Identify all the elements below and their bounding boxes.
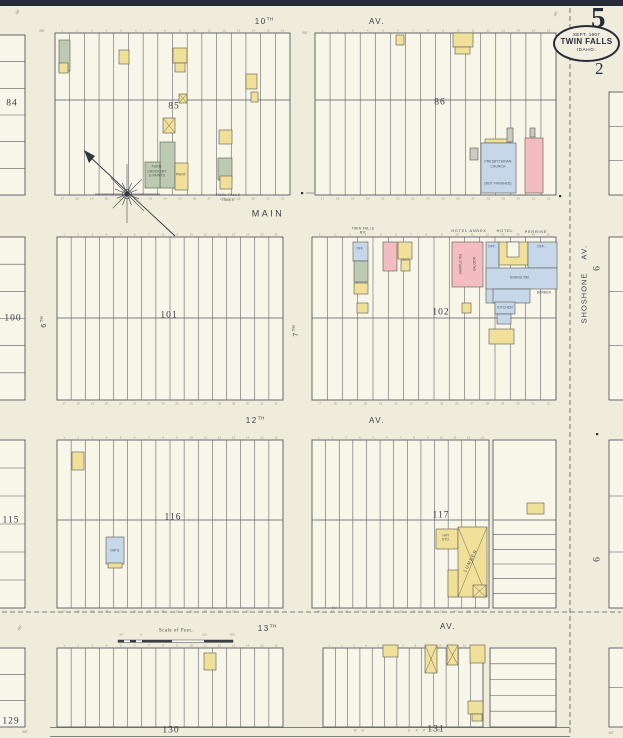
lot-number: 15 bbox=[260, 233, 264, 237]
sanborn-map-sheet: 1172183194205216227238249251026112712281… bbox=[0, 0, 623, 738]
lot-number: 31 bbox=[531, 402, 535, 406]
lot-number: 11 bbox=[204, 644, 207, 648]
building bbox=[383, 645, 398, 657]
lot-number: 1 bbox=[63, 233, 65, 237]
lot-number: 24 bbox=[163, 197, 167, 201]
lot-number: 27 bbox=[471, 197, 475, 201]
lot-number: 6 bbox=[386, 436, 388, 440]
lot-number: 32 bbox=[274, 610, 278, 614]
building bbox=[251, 92, 258, 102]
lot-number: 29 bbox=[232, 402, 236, 406]
lot-number: 2 bbox=[77, 233, 79, 237]
lot-number: 8 bbox=[164, 29, 166, 33]
lot-number: 25 bbox=[175, 610, 179, 614]
lot-number: 17 bbox=[62, 610, 66, 614]
lot-number: 5 bbox=[120, 644, 122, 648]
lot-number: 30 bbox=[246, 402, 250, 406]
lot-number: 11 bbox=[204, 233, 207, 237]
lot-number: 4 bbox=[365, 233, 367, 237]
lot-number: 19 bbox=[351, 197, 355, 201]
lot-number: 15 bbox=[266, 29, 270, 33]
lot-number: 9 bbox=[179, 29, 181, 33]
lot-number: 12 bbox=[218, 436, 222, 440]
building bbox=[354, 283, 368, 294]
lot-number: 29 bbox=[232, 610, 236, 614]
lot-number: 9 bbox=[442, 29, 444, 33]
lot-number: 8 bbox=[426, 233, 428, 237]
lot-number: 19 bbox=[385, 610, 389, 614]
lot-number: 16 bbox=[281, 29, 285, 33]
lot-number: 8 bbox=[162, 644, 164, 648]
building bbox=[145, 162, 160, 188]
lot-number: 10 bbox=[190, 644, 194, 648]
lot-number: 30 bbox=[516, 402, 520, 406]
lot-number: 20 bbox=[105, 610, 109, 614]
building bbox=[106, 537, 124, 564]
lot-number: 12 bbox=[218, 644, 222, 648]
building bbox=[119, 50, 129, 64]
lot-number: 1 bbox=[62, 29, 64, 33]
building bbox=[175, 163, 188, 190]
lot-number: 9 bbox=[441, 233, 443, 237]
lot-number: 11 bbox=[471, 233, 474, 237]
lot-number: 13 bbox=[232, 644, 236, 648]
lot-number: 2 bbox=[337, 29, 339, 33]
lot-number: 6 bbox=[395, 233, 397, 237]
building bbox=[470, 148, 478, 160]
lot-number: 22 bbox=[133, 610, 137, 614]
lot-number: 32 bbox=[547, 197, 551, 201]
lot-number: 10 bbox=[455, 233, 459, 237]
building bbox=[530, 128, 535, 137]
lot-number: 12 bbox=[486, 233, 490, 237]
lot-number: 17 bbox=[358, 610, 362, 614]
publisher-stamp: SEPT. 1907 TWIN FALLS IDAHO. bbox=[553, 25, 620, 62]
lot-number: 31 bbox=[260, 402, 264, 406]
lot-number: 15 bbox=[331, 610, 335, 614]
lot-number: 9 bbox=[427, 436, 429, 440]
lot-number: 15 bbox=[531, 233, 535, 237]
lot-number: 2 bbox=[341, 644, 343, 648]
stamp-date: SEPT. 1907 bbox=[555, 32, 618, 37]
lot-number: 27 bbox=[204, 610, 208, 614]
building bbox=[468, 701, 483, 714]
stamp-city: TWIN FALLS bbox=[555, 37, 618, 46]
building bbox=[108, 563, 122, 568]
lot-number: 26 bbox=[190, 610, 194, 614]
lot-number: 15 bbox=[260, 436, 264, 440]
city-block bbox=[0, 648, 25, 727]
lot-number: 1 bbox=[63, 436, 65, 440]
lot-number: 12 bbox=[218, 233, 222, 237]
lot-number: 27 bbox=[208, 197, 212, 201]
lot-number: 2 bbox=[77, 644, 79, 648]
lot-number: 32 bbox=[274, 402, 278, 406]
lot-number: 18 bbox=[77, 402, 81, 406]
building bbox=[204, 653, 216, 670]
lot-number: 1 bbox=[63, 644, 65, 648]
compass-center bbox=[125, 192, 130, 197]
lot-number: 20 bbox=[399, 610, 403, 614]
lot-number: 14 bbox=[246, 644, 250, 648]
lot-number: 9 bbox=[176, 436, 178, 440]
lot-number: 4 bbox=[365, 644, 367, 648]
sheet-top-border bbox=[0, 0, 623, 6]
city-block bbox=[323, 648, 483, 727]
lot-number: 3 bbox=[349, 233, 351, 237]
lot-number: 10 bbox=[190, 233, 194, 237]
lot-number: 15 bbox=[260, 644, 264, 648]
lot-number: 28 bbox=[487, 197, 491, 201]
building bbox=[470, 645, 485, 663]
lot-number: 14 bbox=[246, 233, 250, 237]
stamp-state: IDAHO. bbox=[555, 47, 618, 52]
lot-number: 16 bbox=[274, 436, 278, 440]
building bbox=[472, 714, 482, 721]
lot-number: 20 bbox=[366, 197, 370, 201]
building bbox=[353, 242, 368, 261]
lot-number: 9 bbox=[176, 233, 178, 237]
lot-number: 29 bbox=[501, 402, 505, 406]
scale-bar-segment bbox=[118, 640, 124, 642]
lot-number: 17 bbox=[318, 402, 322, 406]
lot-number: 28 bbox=[486, 402, 490, 406]
lot-number: 14 bbox=[252, 29, 256, 33]
lot-number: 9 bbox=[176, 644, 178, 648]
lot-number: 13 bbox=[232, 436, 236, 440]
building bbox=[462, 303, 471, 313]
lot-number: 16 bbox=[274, 644, 278, 648]
lot-number: 25 bbox=[178, 197, 182, 201]
lot-number: 11 bbox=[472, 29, 475, 33]
lot-number: 18 bbox=[336, 197, 340, 201]
lot-number: 3 bbox=[91, 436, 93, 440]
building bbox=[219, 130, 232, 144]
lot-number: 14 bbox=[246, 436, 250, 440]
lot-number: 6 bbox=[397, 29, 399, 33]
lot-number: 25 bbox=[440, 402, 444, 406]
lot-number: 22 bbox=[394, 402, 398, 406]
building bbox=[507, 242, 519, 257]
lot-number: 23 bbox=[147, 610, 151, 614]
lot-number: 32 bbox=[547, 402, 551, 406]
lot-number: 31 bbox=[260, 610, 264, 614]
lot-number: 12 bbox=[463, 644, 467, 648]
building bbox=[448, 570, 458, 597]
lot-number: 18 bbox=[333, 402, 337, 406]
lot-number: 8 bbox=[413, 436, 415, 440]
building bbox=[486, 268, 557, 289]
building bbox=[383, 242, 397, 271]
lot-number: 31 bbox=[266, 197, 270, 201]
lot-number: 8 bbox=[162, 436, 164, 440]
lot-number: 23 bbox=[147, 402, 151, 406]
lot-number: 19 bbox=[91, 402, 95, 406]
building bbox=[173, 48, 187, 63]
lot-number: 21 bbox=[119, 402, 123, 406]
lot-number: 31 bbox=[532, 197, 536, 201]
lot-number: 28 bbox=[218, 402, 222, 406]
lot-number: 13 bbox=[501, 233, 505, 237]
lot-number: 16 bbox=[274, 233, 278, 237]
lot-number: 14 bbox=[317, 610, 321, 614]
lot-number: 3 bbox=[345, 436, 347, 440]
lot-number: 23 bbox=[149, 197, 153, 201]
lot-number: 20 bbox=[364, 402, 368, 406]
city-block bbox=[609, 440, 623, 608]
lot-number: 23 bbox=[411, 197, 415, 201]
lot-number: 18 bbox=[75, 197, 79, 201]
lot-number: 4 bbox=[106, 29, 108, 33]
building bbox=[507, 128, 513, 142]
lot-number: 16 bbox=[547, 29, 551, 33]
lot-number: 4 bbox=[367, 29, 369, 33]
building bbox=[72, 452, 84, 470]
lot-number: 1 bbox=[319, 233, 321, 237]
lot-number: 7 bbox=[410, 233, 412, 237]
lot-number: 26 bbox=[456, 197, 460, 201]
lot-number: 12 bbox=[487, 29, 491, 33]
lot-number: 16 bbox=[547, 233, 551, 237]
lot-number: 14 bbox=[517, 29, 521, 33]
lot-number: 14 bbox=[516, 233, 520, 237]
building bbox=[493, 289, 530, 303]
lot-number: 13 bbox=[232, 233, 236, 237]
lot-number: 24 bbox=[453, 610, 457, 614]
lot-number: 4 bbox=[359, 436, 361, 440]
building bbox=[495, 302, 515, 314]
lot-number: 5 bbox=[378, 644, 380, 648]
lot-number: 19 bbox=[91, 610, 95, 614]
lot-number: 26 bbox=[190, 402, 194, 406]
building bbox=[220, 176, 232, 189]
building bbox=[401, 260, 410, 271]
scale-bar-segment bbox=[204, 640, 233, 642]
lot-number: 11 bbox=[208, 29, 211, 33]
lot-number: 13 bbox=[502, 29, 506, 33]
lot-number: 32 bbox=[281, 197, 285, 201]
lot-number: 7 bbox=[412, 29, 414, 33]
lot-number: 20 bbox=[105, 197, 109, 201]
lot-number: 4 bbox=[106, 233, 108, 237]
building bbox=[354, 261, 368, 282]
lot-number: 23 bbox=[440, 610, 444, 614]
lot-number: 20 bbox=[105, 402, 109, 406]
lot-number: 6 bbox=[134, 644, 136, 648]
lot-number: 18 bbox=[77, 610, 81, 614]
lot-number: 21 bbox=[379, 402, 383, 406]
lot-number: 26 bbox=[193, 197, 197, 201]
sheet-sub-number: 2 bbox=[595, 59, 604, 79]
lot-number: 12 bbox=[222, 29, 226, 33]
lot-number: 28 bbox=[222, 197, 226, 201]
lot-number: 10 bbox=[438, 644, 442, 648]
lot-number: 3 bbox=[91, 29, 93, 33]
lot-number: 27 bbox=[204, 402, 208, 406]
lot-number: 17 bbox=[62, 402, 66, 406]
lot-number: 30 bbox=[252, 197, 256, 201]
building bbox=[489, 329, 514, 344]
lot-number: 22 bbox=[133, 402, 137, 406]
city-block bbox=[609, 237, 623, 400]
lot-number: 3 bbox=[91, 233, 93, 237]
lot-number: 19 bbox=[348, 402, 352, 406]
map-dot bbox=[596, 433, 598, 435]
map-dot bbox=[559, 195, 561, 197]
lot-number: 8 bbox=[427, 29, 429, 33]
building bbox=[357, 303, 368, 313]
lot-number: 7 bbox=[148, 436, 150, 440]
lot-number: 12 bbox=[467, 436, 471, 440]
lot-number: 10 bbox=[456, 29, 460, 33]
lot-number: 4 bbox=[106, 644, 108, 648]
lot-number: 23 bbox=[409, 402, 413, 406]
lot-number: 29 bbox=[237, 197, 241, 201]
lot-number: 1 bbox=[322, 29, 324, 33]
lot-number: 6 bbox=[135, 29, 137, 33]
lot-number: 5 bbox=[372, 436, 374, 440]
lot-number: 5 bbox=[120, 29, 122, 33]
scale-bar-segment bbox=[130, 640, 136, 642]
building bbox=[527, 503, 544, 514]
lot-number: 7 bbox=[400, 436, 402, 440]
lot-number: 26 bbox=[481, 610, 485, 614]
lot-number: 21 bbox=[119, 610, 123, 614]
lot-number: 17 bbox=[321, 197, 325, 201]
lot-number: 21 bbox=[381, 197, 385, 201]
lot-number: 29 bbox=[502, 197, 506, 201]
city-block bbox=[493, 440, 556, 608]
lot-number: 16 bbox=[344, 610, 348, 614]
building bbox=[455, 47, 470, 54]
lot-number: 24 bbox=[161, 402, 165, 406]
lot-number: 30 bbox=[246, 610, 250, 614]
building bbox=[452, 242, 483, 287]
lot-number: 25 bbox=[467, 610, 471, 614]
lot-number: 28 bbox=[218, 610, 222, 614]
lot-number: 2 bbox=[334, 233, 336, 237]
lot-number: 13 bbox=[481, 436, 485, 440]
lot-number: 15 bbox=[532, 29, 536, 33]
building bbox=[436, 529, 458, 549]
lot-number: 5 bbox=[380, 233, 382, 237]
lot-number: 7 bbox=[150, 29, 152, 33]
lot-number: 2 bbox=[77, 436, 79, 440]
building bbox=[175, 63, 185, 72]
lot-number: 3 bbox=[353, 644, 355, 648]
scale-bar-segment bbox=[142, 640, 172, 642]
lot-number: 24 bbox=[426, 197, 430, 201]
lot-number: 19 bbox=[90, 197, 94, 201]
lot-number: 5 bbox=[120, 436, 122, 440]
lot-number: 8 bbox=[162, 233, 164, 237]
lot-number: 27 bbox=[470, 402, 474, 406]
lot-number: 6 bbox=[134, 436, 136, 440]
lot-number: 18 bbox=[372, 610, 376, 614]
lot-number: 7 bbox=[148, 644, 150, 648]
lot-number: 10 bbox=[190, 436, 194, 440]
lot-number: 24 bbox=[161, 610, 165, 614]
lot-number: 7 bbox=[148, 233, 150, 237]
lot-number: 10 bbox=[193, 29, 197, 33]
building bbox=[525, 138, 543, 193]
lot-number: 5 bbox=[120, 233, 122, 237]
lot-number: 11 bbox=[453, 436, 456, 440]
lot-number: 3 bbox=[352, 29, 354, 33]
lot-number: 26 bbox=[455, 402, 459, 406]
lot-number: 4 bbox=[106, 436, 108, 440]
lot-number: 2 bbox=[332, 436, 334, 440]
lot-number: 22 bbox=[426, 610, 430, 614]
lot-number: 2 bbox=[76, 29, 78, 33]
lot-number: 6 bbox=[134, 233, 136, 237]
lot-number: 3 bbox=[91, 644, 93, 648]
building bbox=[497, 314, 511, 324]
lot-number: 30 bbox=[517, 197, 521, 201]
lot-number: 21 bbox=[412, 610, 416, 614]
city-block bbox=[609, 92, 623, 195]
lot-number: 13 bbox=[237, 29, 241, 33]
building bbox=[481, 143, 516, 193]
lot-number: 8 bbox=[414, 644, 416, 648]
building bbox=[485, 139, 510, 143]
lot-number: 25 bbox=[175, 402, 179, 406]
lot-number: 7 bbox=[402, 644, 404, 648]
lot-number: 11 bbox=[204, 436, 207, 440]
city-block bbox=[490, 648, 556, 727]
lot-number: 17 bbox=[61, 197, 65, 201]
lot-number: 24 bbox=[425, 402, 429, 406]
lot-number: 5 bbox=[382, 29, 384, 33]
building bbox=[528, 242, 557, 268]
map-dot bbox=[301, 192, 303, 194]
lot-number: 22 bbox=[396, 197, 400, 201]
building bbox=[396, 35, 404, 45]
building bbox=[59, 63, 68, 73]
lot-number: 10 bbox=[440, 436, 444, 440]
building bbox=[246, 74, 257, 89]
lot-number: 1 bbox=[328, 644, 330, 648]
lot-number: 25 bbox=[441, 197, 445, 201]
building bbox=[160, 142, 175, 188]
lot-number: 1 bbox=[318, 436, 320, 440]
building bbox=[453, 33, 473, 47]
building bbox=[398, 242, 412, 259]
map-canvas: 1172183194205216227238249251026112712281… bbox=[0, 0, 623, 738]
